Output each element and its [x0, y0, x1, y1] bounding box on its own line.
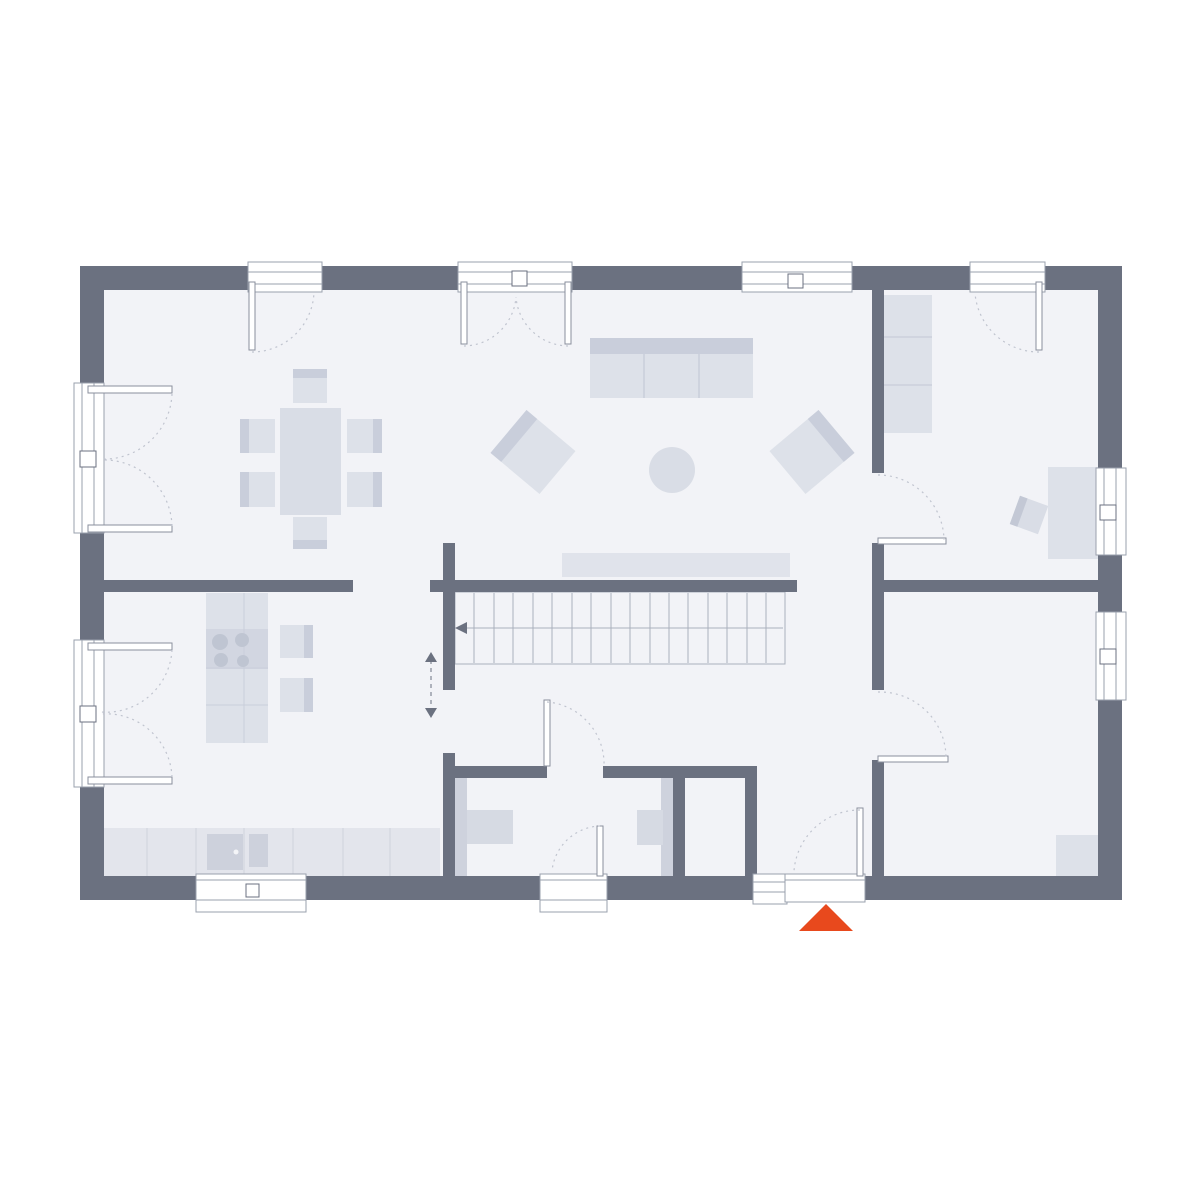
front-door-leaf [857, 808, 863, 876]
wall-bedroom-mid [872, 543, 884, 690]
door-leaf-terrace-right [565, 282, 571, 344]
window-kitchen-french-handle [80, 706, 96, 722]
exterior-wall-right-3 [1098, 700, 1122, 900]
dining-chair-left-2-back [240, 472, 249, 507]
kitchen-appliance [249, 834, 268, 867]
wall-bedroom-upper [872, 290, 884, 473]
window-living-french [248, 262, 322, 292]
wall-stair-left-lower [443, 753, 455, 876]
coffee-table-round [649, 447, 695, 493]
window-bedroom-door [970, 262, 1045, 292]
wall-dining-divider [104, 580, 353, 592]
exterior-wall-right-1 [1098, 266, 1122, 470]
window-entry-sidelight [753, 874, 787, 904]
door-leaf-terrace-left [461, 282, 467, 344]
wall-entry-lower [872, 760, 884, 876]
floor-plan-svg [0, 0, 1200, 1200]
window-sash-bath [597, 826, 603, 876]
wall-right-rooms-divider [884, 580, 1098, 592]
exterior-wall-top-2 [322, 266, 458, 290]
exterior-wall-top-3 [572, 266, 742, 290]
door-leaf-dining-french-top [88, 386, 172, 393]
bar-stool-1-back [304, 625, 313, 658]
dining-chair-right-2-back [373, 472, 382, 507]
exterior-wall-bottom-4 [865, 876, 1122, 900]
front-door-opening [785, 874, 865, 902]
exterior-wall-top-4 [852, 266, 970, 290]
wall-bath-top-right [603, 766, 757, 778]
exterior-wall-right-2 [1098, 555, 1122, 612]
wall-entry-left [745, 766, 757, 876]
burner-3 [214, 653, 228, 667]
wall-bath-divider [673, 778, 685, 876]
exterior-wall-bottom-1 [80, 876, 196, 900]
bath-install-band-left [455, 778, 467, 876]
kitchen-faucet-dot [234, 850, 239, 855]
dining-table [280, 408, 341, 515]
window-room-right-handle [1100, 649, 1116, 664]
dining-chair-left-1-back [240, 419, 249, 453]
wall-bath-top-left [455, 766, 547, 778]
window-terrace-handle [512, 271, 527, 286]
door-leaf-living-french [249, 282, 255, 350]
wall-stair-top [430, 580, 797, 592]
door-leaf-hall-bath [544, 700, 550, 766]
bar-stool-2-back [304, 678, 313, 712]
door-leaf-bedroom [878, 538, 946, 544]
bath-washbasin-right [637, 810, 663, 845]
dining-chair-bottom-back [293, 540, 327, 549]
entrance-marker [799, 904, 853, 931]
burner-1 [212, 634, 228, 650]
window-dining-french-handle [80, 451, 96, 467]
floor-plan-page [0, 0, 1200, 1200]
bath-washbasin-left [467, 810, 513, 844]
burner-4 [237, 655, 249, 667]
exterior-wall-bottom-2 [306, 876, 540, 900]
exterior-wall-left-2 [80, 533, 104, 640]
door-leaf-bedroom-terrace [1036, 282, 1042, 350]
burner-2 [235, 633, 249, 647]
wall-stair-left-upper [443, 543, 455, 690]
dining-chair-top-back [293, 369, 327, 378]
dining-chair-right-1-back [373, 419, 382, 453]
door-leaf-kitchen-french-top [88, 643, 172, 650]
window-kitchen-bottom-handle [246, 884, 259, 897]
door-leaf-kitchen-french-bottom [88, 777, 172, 784]
window-bedroom-right-handle [1100, 505, 1116, 520]
wardrobe [884, 295, 932, 433]
door-leaf-bottom-right-room [878, 756, 948, 762]
window-living-top-handle [788, 274, 803, 288]
sideboard [562, 553, 790, 577]
exterior-wall-bottom-3 [607, 876, 755, 900]
bottom-right-furniture [1056, 835, 1098, 876]
exterior-wall-left-1 [80, 266, 104, 383]
desk [1048, 467, 1098, 559]
sofa-back [590, 338, 753, 354]
door-leaf-dining-french-bottom [88, 525, 172, 532]
exterior-wall-top-1 [80, 266, 248, 290]
